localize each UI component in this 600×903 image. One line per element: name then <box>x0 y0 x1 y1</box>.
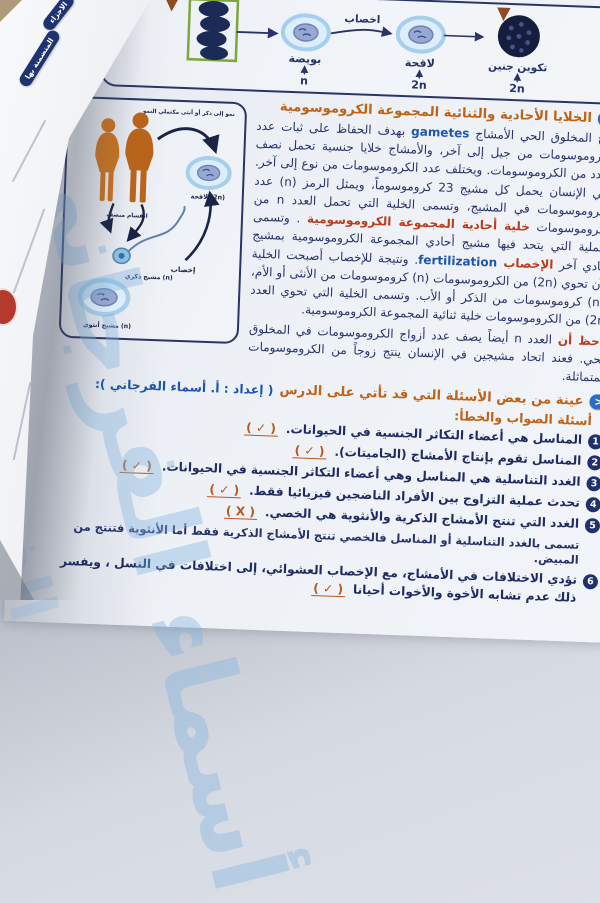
life-cycle-diagram: نمو إلى ذكر أو أنثى مكتملي النمو انقسام … <box>61 98 246 342</box>
zygote-label: لاقحة <box>405 56 435 70</box>
fertilization-arrow-icon <box>331 29 391 36</box>
fertilization-chain-diagram: بويضة n اخصاب لاقحة 2n <box>108 0 600 98</box>
question-number-badge: 1 <box>588 434 600 450</box>
zygote-ploidy: 2n <box>411 78 427 92</box>
text-segment: fertilization <box>418 252 498 269</box>
answer-mark: ( X ) <box>224 504 258 520</box>
egg-cell-icon <box>282 15 329 51</box>
zygote-cell-icon <box>187 157 230 189</box>
answer-mark: ( ✓ ) <box>292 443 326 459</box>
fertilization-label: اخصاب <box>344 13 380 26</box>
embryo-ploidy: 2n <box>509 82 525 96</box>
answer-mark: ( ✓ ) <box>207 482 241 498</box>
connector-arrow-icon <box>444 36 483 37</box>
left-page-tab: المتضمنة بها <box>17 28 61 88</box>
adult-male-figure-icon <box>124 112 155 203</box>
page-bottom-shadow <box>0 540 34 600</box>
cycle-zygote-label: لاقحة (2n) <box>190 192 225 201</box>
figure-chain-box: بويضة n اخصاب لاقحة 2n <box>100 0 600 105</box>
text-segment: لاحظ أن <box>558 332 600 348</box>
answer-mark: ( ✓ ) <box>311 581 345 597</box>
textbook-right-page: بويضة n اخصاب لاقحة 2n <box>4 0 600 643</box>
connector-arrow-icon <box>237 32 277 33</box>
adult-female-figure-icon <box>94 118 121 202</box>
question-number-badge: 3 <box>586 476 600 492</box>
figure-life-cycle-box: نمو إلى ذكر أو أنثى مكتملي النمو انقسام … <box>59 96 248 344</box>
meiosis-label: انقسام منصف <box>106 212 147 220</box>
zygote-cell-icon <box>397 17 444 53</box>
question-number-badge: 6 <box>583 574 599 590</box>
text-segment: gametes <box>411 124 470 140</box>
male-gamete-label: مشيج ذكري (n) <box>125 273 173 282</box>
female-gamete-label: مشيج أنثوي (n) <box>83 320 131 330</box>
question-number-badge: 5 <box>585 518 600 534</box>
egg-label: بويضة <box>288 52 321 66</box>
question-number-badge: 2 <box>587 455 600 471</box>
left-page-text-line <box>13 208 46 293</box>
left-page-text-line <box>12 120 47 183</box>
quiz-list: 1المناسل هي أعضاء التكاثر الجنسية في الح… <box>35 412 600 609</box>
question-number-badge: 4 <box>585 497 600 513</box>
egg-ploidy: n <box>300 74 308 87</box>
cycle-fertilization-arrow-icon <box>185 192 211 261</box>
book-photo: { "watermark": {"text_large": "أسماء الف… <box>0 0 600 600</box>
chevron-badge-icon: < <box>589 394 600 410</box>
sperm-stack-box-icon <box>188 0 238 61</box>
text-segment: العدد n أيضاً يصف عدد أزواج الكروموسومات… <box>248 321 600 384</box>
left-page-tab: الاجزاء <box>41 0 76 33</box>
growth-arrow-icon <box>157 128 216 152</box>
author-credit: ( إعداد : أ. أسماء الفرجاني ): <box>95 376 274 398</box>
cycle-fertilization-label: إخصاب <box>171 265 196 275</box>
meiosis-arrow-icon <box>128 204 144 241</box>
text-segment: ينتج المخلوق الحي الأمشاج <box>469 127 600 146</box>
female-gamete-cell-icon <box>79 279 128 315</box>
answer-mark: ( ✓ ) <box>120 458 154 474</box>
book-cover-corner <box>0 0 22 22</box>
embryo-morula-icon <box>497 15 541 59</box>
text-segment: الإخصاب <box>497 255 554 271</box>
left-page-red-badge-icon <box>0 288 18 326</box>
growth-label: نمو إلى ذكر أو أنثى مكتملي النمو <box>142 106 235 117</box>
answer-mark: ( ✓ ) <box>244 420 278 436</box>
embryo-label: تكوين جنين <box>488 60 548 74</box>
